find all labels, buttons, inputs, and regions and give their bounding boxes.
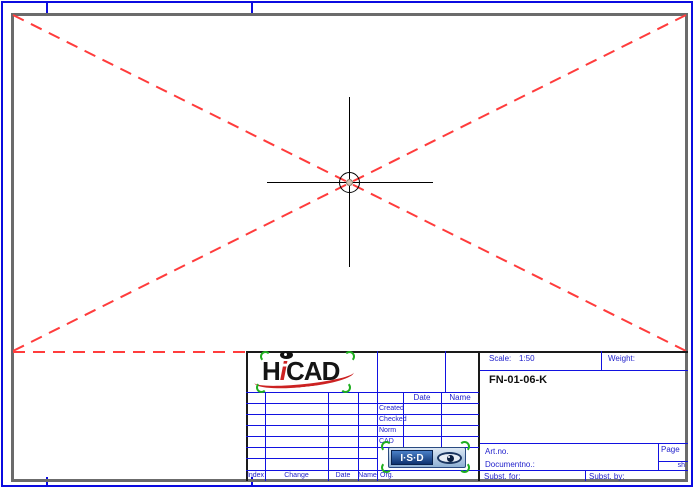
subst-for-label: Subst. for: [484,472,520,481]
grid-line [601,351,602,370]
grid-line [265,392,266,481]
cad-sheet: Scale: 1:50 Weight: FN-01-06-K Date Name… [0,0,700,495]
grid-line [246,436,479,437]
header-name: Name [441,393,479,402]
documentno-label: Documentno.: [485,460,535,469]
isd-logo: I·S·D [388,447,466,468]
titleblock-line [246,351,248,481]
row-label-created: Created [379,405,404,413]
eye-icon [437,452,462,464]
grid-line [328,392,329,481]
registration-arc [381,441,392,452]
page-label: Page [661,445,680,454]
hicad-logo-text: HiCAD [262,358,339,384]
weight-label: Weight: [608,354,635,363]
grid-line [377,351,378,481]
bottom-name-label: Name [358,472,377,480]
row-label-norm: Norm [379,427,396,435]
margin-tick [46,1,48,13]
eye-icon [280,351,293,359]
scale-value: 1:50 [519,354,535,363]
header-date: Date [403,393,441,402]
grid-line [445,351,446,392]
registration-arc [344,351,355,362]
origin-point[interactable] [346,179,353,186]
grid-line [246,425,479,426]
registration-arc [256,382,267,393]
registration-arc [459,462,470,473]
scale-label: Scale: [489,354,511,363]
bottom-org-label: Org. [380,472,394,480]
grid-line [246,403,479,404]
registration-arc [459,441,470,452]
artno-label: Art.no. [485,447,509,456]
grid-line [480,443,688,444]
subst-by-label: Subst. by: [589,472,625,481]
grid-line [480,370,688,371]
isd-logo-text: I·S·D [391,450,433,465]
grid-line [585,470,586,481]
registration-arc [340,382,351,393]
margin-tick [251,1,253,13]
grid-line [358,392,359,481]
hicad-letters-cad: CAD [286,356,339,386]
bottom-index-label: Index [246,472,265,480]
drawing-number: FN-01-06-K [489,374,547,386]
registration-arc [260,351,271,362]
sheet-label: sh [658,462,685,470]
bottom-change-label: Change [265,472,328,480]
row-label-checked: Checked [379,416,407,424]
bottom-date-label: Date [328,472,358,480]
registration-arc [381,462,392,473]
grid-line [246,414,479,415]
